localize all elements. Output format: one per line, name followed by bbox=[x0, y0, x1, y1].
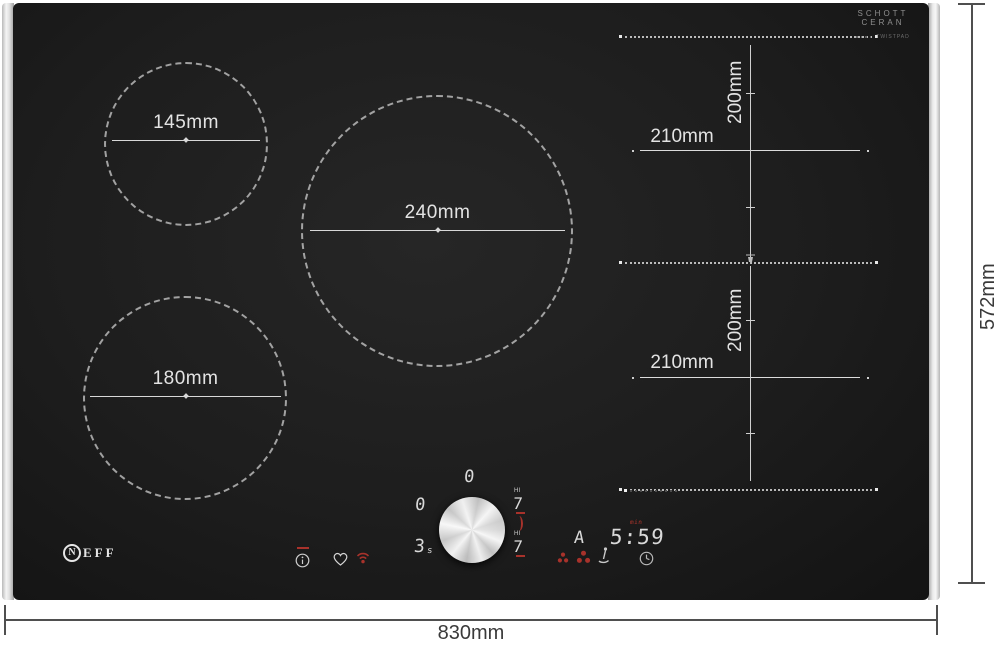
favorite-heart-icon bbox=[332, 551, 349, 567]
product-diagram: 145mm 240mm 180mm bbox=[0, 0, 1000, 647]
neff-logo-initial: N bbox=[63, 544, 81, 562]
heat-indicator-icon bbox=[515, 516, 523, 531]
boundary-end-dot bbox=[619, 261, 622, 264]
info-icon bbox=[295, 553, 310, 568]
ceramic-glass-surface: 145mm 240mm 180mm bbox=[13, 3, 929, 600]
zone-145-diameter-line bbox=[112, 140, 260, 141]
zone-180-dimension-label: 180mm bbox=[90, 368, 281, 390]
boundary-end-dot bbox=[875, 261, 878, 264]
twistpad-knob bbox=[439, 497, 505, 563]
schott-subtext: TWISTPAD bbox=[876, 34, 909, 40]
dot-row bbox=[856, 36, 871, 38]
level-display-top: 7 bbox=[512, 494, 523, 513]
zone-180-diameter-line bbox=[90, 396, 281, 397]
neff-logo-letters: EFF bbox=[83, 545, 117, 561]
flex-top-height-label: 200mm bbox=[723, 56, 749, 128]
pan-marker-icon bbox=[744, 253, 757, 264]
boost-time-unit: s bbox=[427, 546, 433, 556]
zone-240-dimension-label: 240mm bbox=[310, 202, 565, 224]
width-dim-cap-left bbox=[4, 605, 6, 635]
power-move-icon bbox=[556, 551, 570, 565]
width-dimension-label: 830mm bbox=[411, 622, 531, 645]
boundary-end-dot bbox=[619, 35, 622, 38]
height-dimension-line bbox=[971, 3, 973, 583]
flex-bottom-height-label: 200mm bbox=[723, 284, 749, 356]
boost-time-display: 3 bbox=[413, 536, 426, 557]
schott-ceran-print: SCHOTT CERAN TWISTPAD bbox=[843, 9, 923, 40]
auto-display: A bbox=[573, 528, 585, 548]
boundary-end-dot bbox=[875, 488, 878, 491]
height-line-tick bbox=[746, 433, 755, 434]
flex-zone-top-boundary bbox=[625, 36, 872, 38]
schott-line1: SCHOTT bbox=[843, 9, 923, 18]
active-indicator-bar bbox=[297, 547, 309, 549]
level-display-bottom: 7 bbox=[512, 537, 523, 556]
aux-display-top: 0 bbox=[463, 467, 475, 487]
flex-bottom-height-line bbox=[750, 266, 751, 481]
cooktop: 145mm 240mm 180mm bbox=[2, 3, 940, 600]
measure-end-dot bbox=[632, 150, 634, 152]
height-dimension-label: 572mm bbox=[977, 261, 999, 333]
schott-line2: CERAN bbox=[843, 18, 923, 27]
cooking-zone-145 bbox=[104, 62, 268, 226]
zone-240-diameter-line bbox=[310, 230, 565, 231]
timer-display: 5:59 bbox=[609, 525, 666, 549]
home-connect-wifi-icon bbox=[355, 550, 371, 565]
zone-145-dimension-label: 145mm bbox=[112, 112, 260, 134]
level-bottom-select-bar bbox=[516, 555, 525, 557]
timer-clock-icon bbox=[639, 551, 654, 566]
level-top-select-bar bbox=[516, 512, 525, 514]
height-line-tick bbox=[746, 207, 755, 208]
flex-bottom-width-label: 210mm bbox=[642, 352, 722, 374]
progress-dots bbox=[624, 489, 677, 492]
measure-end-dot bbox=[867, 377, 869, 379]
aux-display-left: 0 bbox=[414, 495, 426, 515]
fry-sensor-icon bbox=[575, 549, 592, 566]
height-dim-cap-top bbox=[958, 3, 985, 5]
temperature-probe-icon bbox=[596, 546, 611, 565]
boundary-end-dot bbox=[619, 488, 622, 491]
flex-top-width-label: 210mm bbox=[642, 126, 722, 148]
right-steel-trim bbox=[928, 3, 940, 600]
measure-end-dot bbox=[867, 150, 869, 152]
width-dim-cap-right bbox=[936, 605, 938, 635]
flex-top-height-line bbox=[750, 45, 751, 258]
measure-end-dot bbox=[632, 377, 634, 379]
width-dimension-line bbox=[4, 619, 938, 621]
neff-logo: N EFF bbox=[63, 544, 117, 562]
height-dim-cap-bottom bbox=[958, 582, 985, 584]
